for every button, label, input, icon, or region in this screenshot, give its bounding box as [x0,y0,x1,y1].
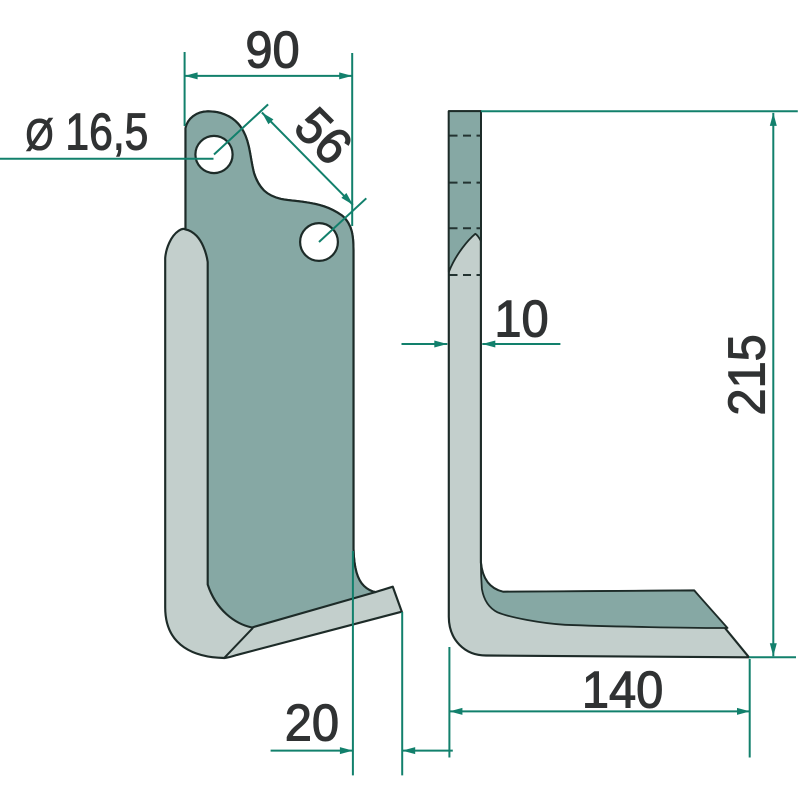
svg-text:90: 90 [245,20,299,79]
svg-text:20: 20 [285,693,339,752]
svg-text:10: 10 [494,289,548,348]
svg-text:Ø 16,5: Ø 16,5 [26,104,149,162]
svg-text:140: 140 [582,660,664,719]
svg-text:215: 215 [717,334,776,416]
